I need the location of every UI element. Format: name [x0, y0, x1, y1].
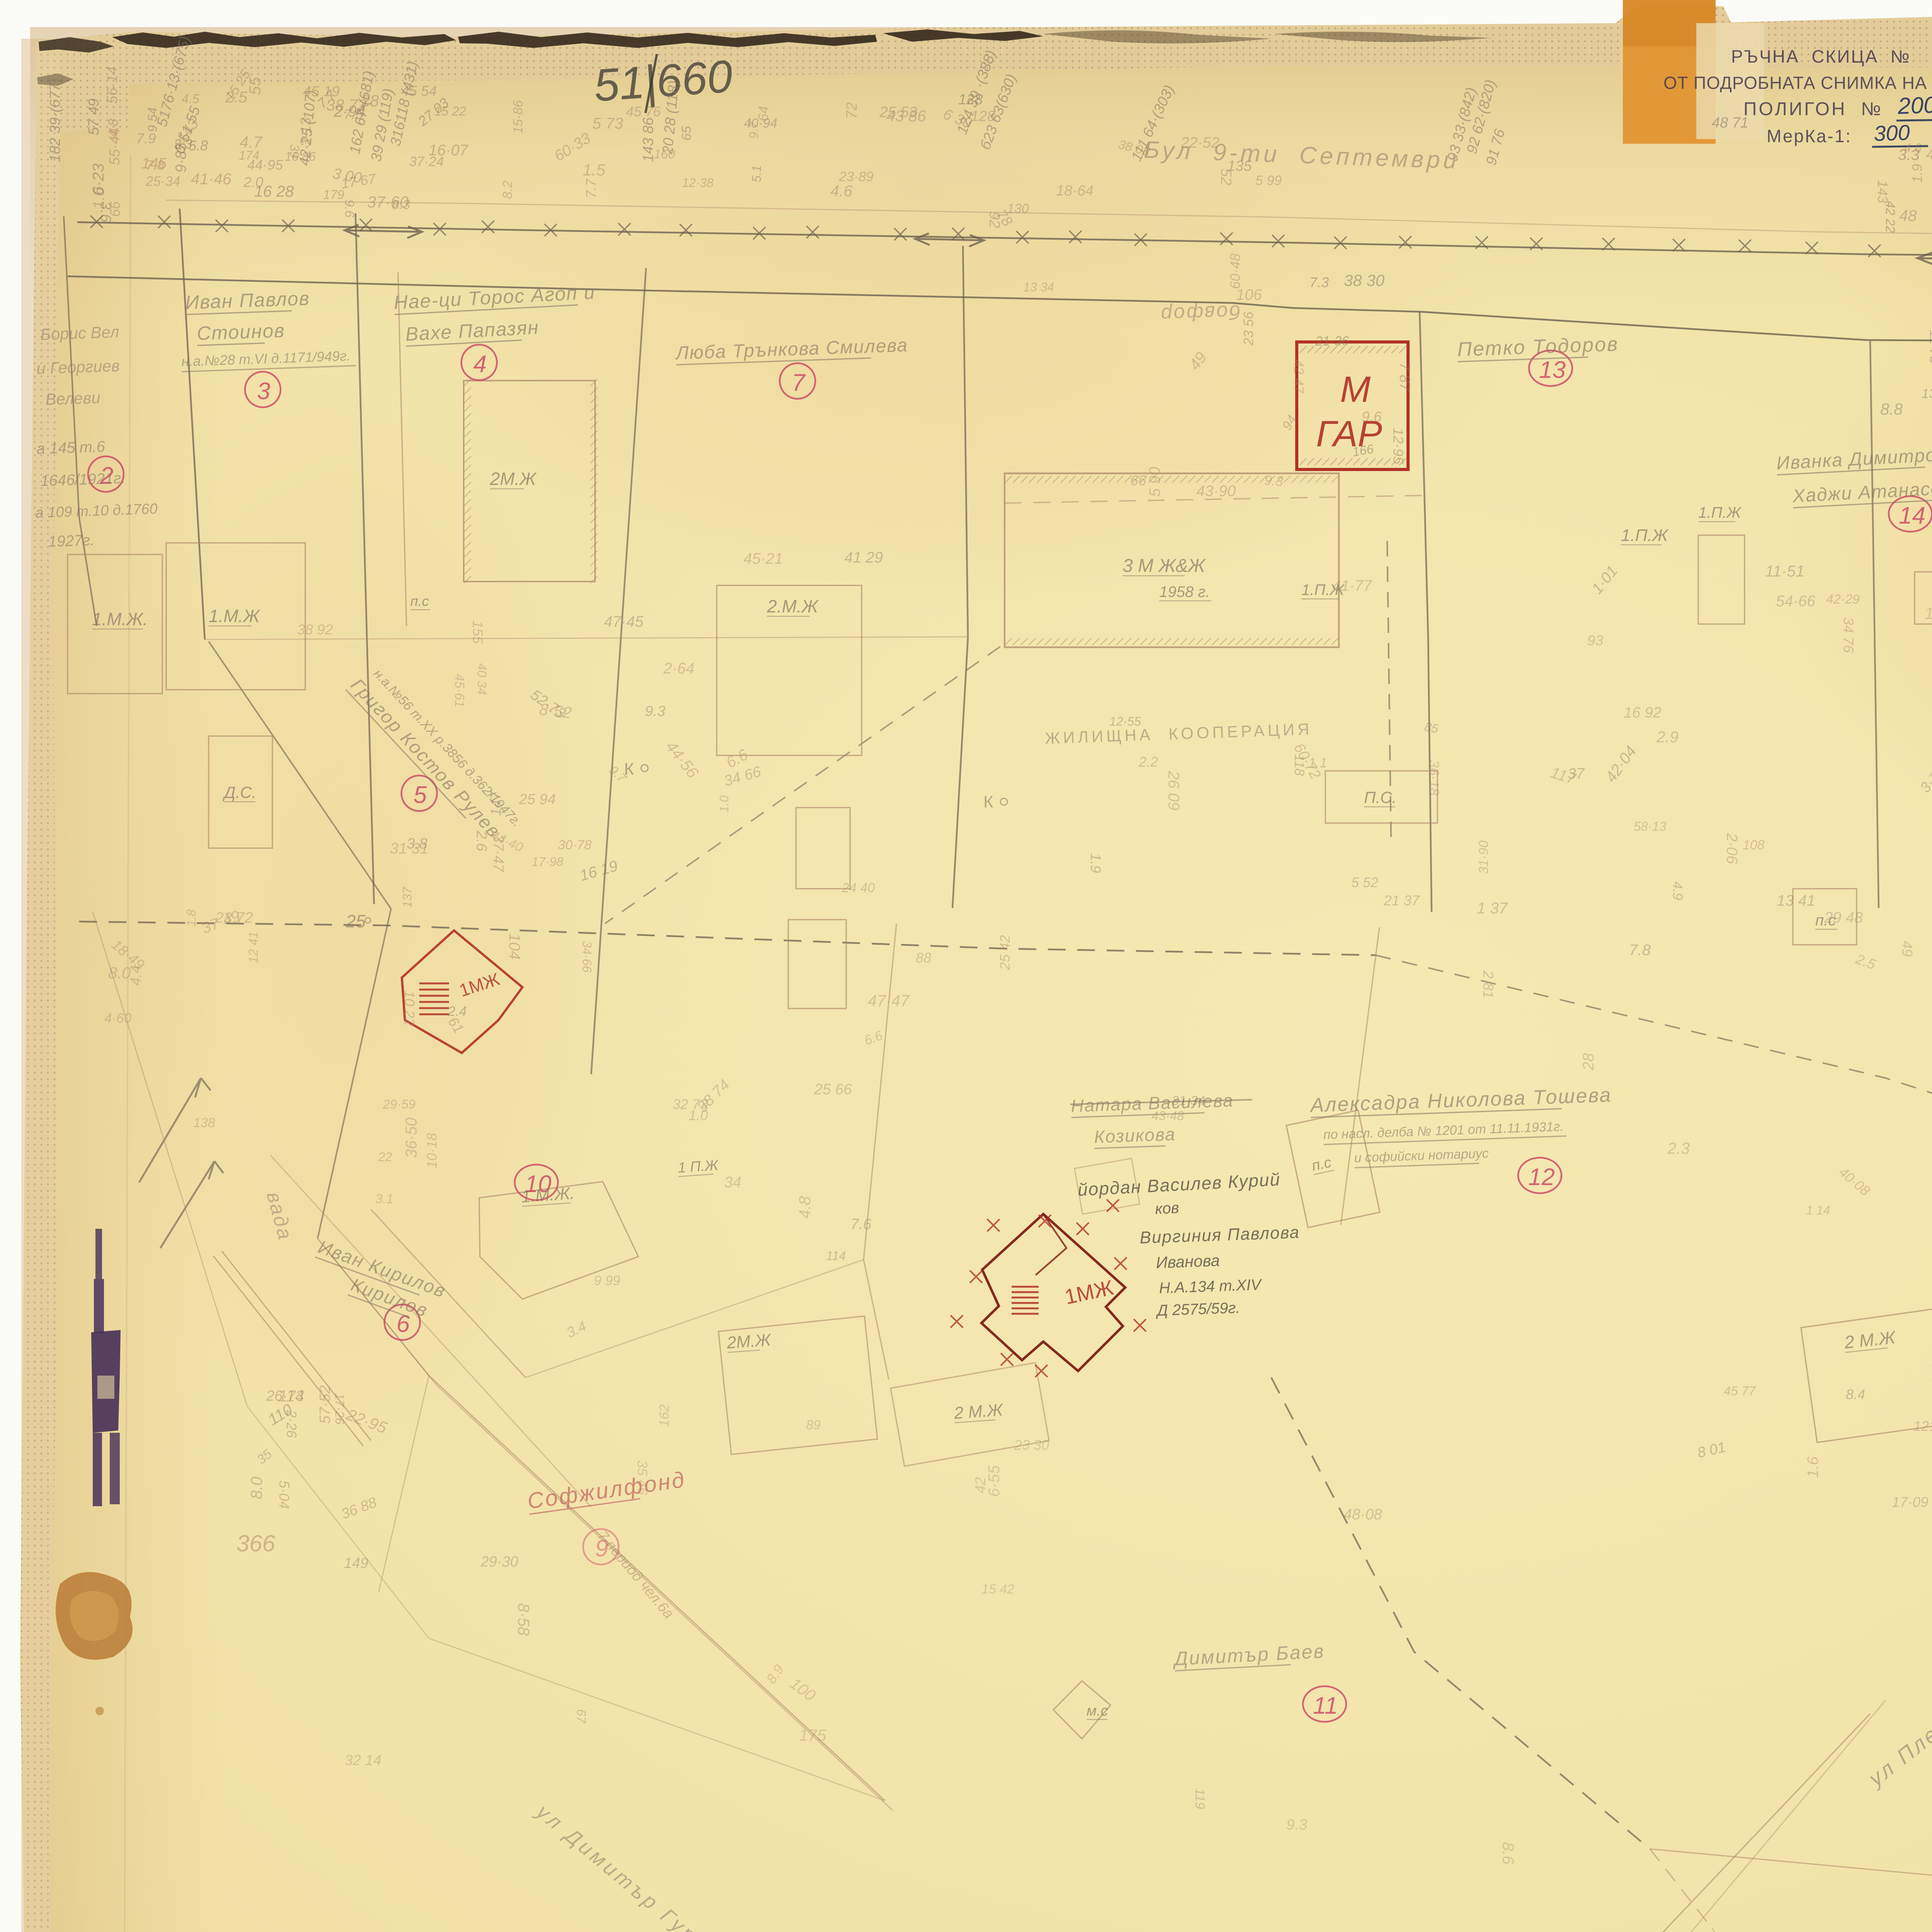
svg-text:23 72: 23 72: [215, 910, 253, 926]
svg-text:1.9: 1.9: [1088, 853, 1104, 873]
svg-text:Козикова: Козикова: [1094, 1124, 1176, 1147]
svg-text:7.8: 7.8: [146, 158, 164, 173]
svg-text:38 92: 38 92: [297, 622, 333, 638]
svg-text:23 56: 23 56: [1241, 311, 1256, 346]
svg-text:4.8: 4.8: [796, 1196, 814, 1219]
svg-text:26 09: 26 09: [1165, 770, 1183, 811]
svg-text:и Георгиев: и Георгиев: [36, 357, 120, 378]
svg-text:1.6: 1.6: [1804, 1456, 1821, 1478]
svg-text:2.0: 2.0: [243, 174, 264, 190]
svg-text:147: 147: [488, 791, 504, 816]
svg-text:58·13: 58·13: [1634, 819, 1667, 833]
svg-text:25 66: 25 66: [814, 1081, 852, 1098]
svg-text:16 92: 16 92: [1624, 704, 1662, 721]
svg-text:13: 13: [1539, 357, 1566, 383]
svg-text:42 47: 42 47: [1291, 359, 1306, 394]
svg-text:99: 99: [107, 201, 123, 216]
svg-text:67: 67: [574, 1709, 588, 1724]
svg-text:32 14: 32 14: [345, 1752, 381, 1769]
svg-text:1 П.Ж: 1 П.Ж: [677, 1157, 719, 1176]
svg-text:88: 88: [916, 950, 931, 966]
svg-text:48 71: 48 71: [1712, 115, 1748, 131]
svg-text:ПОЛИГОН №: ПОЛИГОН №: [1743, 99, 1883, 119]
svg-text:1.2: 1.2: [1925, 604, 1932, 622]
svg-text:51|660: 51|660: [592, 51, 734, 112]
svg-text:9.3: 9.3: [1286, 1816, 1308, 1833]
svg-text:ков: ков: [1155, 1199, 1179, 1218]
svg-text:7 87: 7 87: [1396, 362, 1413, 392]
svg-text:54·66: 54·66: [1776, 593, 1816, 610]
svg-text:1.М.Ж: 1.М.Ж: [209, 606, 260, 626]
svg-text:175: 175: [799, 1726, 827, 1744]
svg-text:15·86: 15·86: [511, 100, 526, 134]
svg-text:57 49: 57 49: [86, 99, 102, 135]
svg-text:15 42: 15 42: [981, 1582, 1014, 1597]
svg-text:1.0: 1.0: [689, 1107, 708, 1123]
svg-text:128: 128: [958, 92, 983, 108]
svg-text:36·50: 36·50: [402, 1117, 420, 1158]
svg-text:41·46: 41·46: [191, 170, 231, 188]
svg-text:9.7: 9.7: [747, 121, 761, 139]
svg-text:м.с: м.с: [1087, 1703, 1108, 1719]
svg-text:31·90: 31·90: [1476, 840, 1491, 874]
svg-text:66: 66: [1130, 473, 1146, 488]
svg-text:5.1: 5.1: [750, 165, 764, 182]
svg-text:4.6: 4.6: [1904, 141, 1922, 155]
svg-text:3: 3: [257, 378, 270, 405]
svg-text:4.6: 4.6: [1926, 146, 1932, 163]
svg-text:10 22: 10 22: [401, 990, 417, 1026]
svg-text:108: 108: [1743, 838, 1765, 852]
svg-text:1927г.: 1927г.: [48, 532, 95, 550]
svg-text:45·61: 45·61: [452, 674, 467, 707]
svg-text:43·90: 43·90: [1196, 483, 1236, 500]
svg-text:7: 7: [792, 369, 806, 396]
svg-text:1 37: 1 37: [1477, 899, 1509, 917]
svg-text:Стоинов: Стоинов: [196, 320, 285, 344]
svg-text:143: 143: [1875, 180, 1891, 203]
svg-text:30·78: 30·78: [558, 838, 592, 852]
svg-text:2.6: 2.6: [473, 830, 490, 852]
svg-text:7.9: 7.9: [136, 131, 156, 146]
svg-text:45·21: 45·21: [743, 550, 783, 567]
svg-text:11: 11: [1313, 1692, 1338, 1719]
svg-text:131: 131: [1922, 386, 1932, 401]
svg-text:1.8: 1.8: [184, 909, 198, 927]
svg-text:8.6: 8.6: [1499, 1842, 1517, 1865]
svg-text:п.с: п.с: [410, 593, 429, 609]
svg-text:366: 366: [236, 1531, 276, 1556]
svg-text:12 41: 12 41: [246, 931, 260, 963]
svg-text:43 86: 43 86: [886, 107, 926, 125]
svg-text:119: 119: [1192, 1788, 1207, 1809]
svg-text:Велеви: Велеви: [45, 388, 101, 408]
svg-text:12·95: 12·95: [1390, 428, 1406, 464]
svg-text:2.9: 2.9: [1656, 728, 1679, 746]
svg-text:40 34: 40 34: [475, 663, 489, 695]
svg-text:7.3: 7.3: [1310, 274, 1329, 290]
svg-text:34 76: 34 76: [1840, 617, 1856, 653]
svg-text:1.М.Ж.: 1.М.Ж.: [92, 609, 148, 629]
svg-text:5: 5: [413, 782, 427, 808]
svg-text:8.2: 8.2: [500, 181, 515, 199]
svg-text:49: 49: [1899, 940, 1915, 957]
svg-text:Борис Вел: Борис Вел: [40, 323, 119, 344]
svg-text:Иван Павлов: Иван Павлов: [185, 287, 310, 313]
svg-text:2.М.Ж: 2.М.Ж: [767, 596, 819, 616]
svg-text:4: 4: [473, 351, 486, 378]
svg-text:12·38: 12·38: [682, 176, 714, 190]
svg-text:48: 48: [1899, 207, 1917, 224]
svg-text:12: 12: [1528, 1164, 1555, 1190]
svg-text:2.2: 2.2: [1138, 754, 1158, 770]
svg-text:6·23: 6·23: [89, 163, 107, 195]
svg-text:104: 104: [506, 933, 524, 959]
svg-text:5 52: 5 52: [1351, 874, 1378, 890]
svg-text:3·13: 3·13: [298, 117, 314, 147]
svg-text:38 30: 38 30: [1344, 271, 1385, 289]
svg-text:36·18: 36·18: [1426, 760, 1442, 796]
svg-text:9.3: 9.3: [645, 703, 665, 719]
svg-text:31·34: 31·34: [1172, 1094, 1205, 1108]
svg-text:14: 14: [1899, 502, 1925, 529]
svg-text:5 90: 5 90: [1146, 467, 1163, 497]
svg-text:МерКа-1:: МерКа-1:: [1767, 126, 1852, 146]
svg-text:155: 155: [470, 621, 486, 644]
svg-text:89: 89: [806, 1418, 821, 1432]
svg-text:23 30: 23 30: [1014, 1437, 1049, 1453]
svg-text:121: 121: [1913, 1418, 1932, 1434]
svg-text:128: 128: [971, 108, 995, 124]
svg-text:8·58: 8·58: [515, 1603, 533, 1636]
svg-text:29·30: 29·30: [480, 1554, 518, 1570]
svg-text:1646/1921г.: 1646/1921г.: [40, 469, 126, 490]
svg-text:57·52: 57·52: [317, 1385, 333, 1424]
svg-text:160: 160: [654, 147, 675, 161]
svg-text:1.0: 1.0: [717, 795, 731, 813]
svg-text:29·59: 29·59: [383, 1097, 415, 1111]
svg-text:45 54: 45 54: [401, 83, 437, 99]
svg-text:бовфор: бовфор: [1159, 301, 1241, 326]
svg-text:47·45: 47·45: [604, 613, 644, 630]
svg-text:7.5: 7.5: [344, 106, 363, 122]
svg-text:13 41: 13 41: [1777, 892, 1815, 909]
svg-text:9.3: 9.3: [1264, 473, 1284, 489]
svg-text:РЪЧНА СКИЦА №: РЪЧНА СКИЦА №: [1731, 46, 1911, 66]
svg-text:34·66: 34·66: [580, 941, 594, 973]
svg-text:4.5: 4.5: [182, 92, 200, 106]
svg-text:7.7: 7.7: [583, 178, 599, 198]
svg-text:4.9: 4.9: [1670, 881, 1685, 900]
svg-text:25·34: 25·34: [145, 174, 180, 189]
svg-text:182 39·(677): 182 39·(677): [47, 78, 63, 162]
svg-text:2 М.Ж: 2 М.Ж: [953, 1400, 1004, 1423]
svg-text:72: 72: [844, 102, 860, 119]
svg-text:Д 2575/59г.: Д 2575/59г.: [1155, 1299, 1240, 1320]
svg-text:1.П.Ж: 1.П.Ж: [1698, 504, 1742, 521]
svg-text:149: 149: [344, 1555, 368, 1571]
svg-text:60·48: 60·48: [1227, 253, 1243, 289]
svg-text:13 34: 13 34: [1023, 280, 1054, 294]
svg-text:135: 135: [1227, 158, 1252, 174]
svg-text:114: 114: [826, 1249, 846, 1263]
svg-text:Н.А.134 т.XIV: Н.А.134 т.XIV: [1159, 1276, 1263, 1297]
svg-text:56·14: 56·14: [104, 66, 121, 104]
svg-text:11·51: 11·51: [1765, 562, 1804, 580]
svg-text:45 77: 45 77: [1724, 1384, 1756, 1398]
svg-text:2·64: 2·64: [663, 660, 694, 677]
svg-text:2М.Ж: 2М.Ж: [726, 1330, 772, 1352]
svg-text:1.П.Ж: 1.П.Ж: [1621, 526, 1669, 545]
svg-text:42 22: 42 22: [1883, 201, 1898, 233]
svg-text:17·98: 17·98: [532, 855, 563, 869]
svg-text:8.8: 8.8: [1880, 400, 1903, 418]
svg-text:25 94: 25 94: [519, 791, 556, 808]
svg-text:4·60: 4·60: [104, 1011, 132, 1026]
svg-text:200: 200: [1897, 92, 1932, 119]
svg-text:1.9: 1.9: [1909, 164, 1925, 183]
svg-text:93: 93: [1587, 633, 1604, 648]
svg-text:25: 25: [345, 911, 366, 931]
svg-text:162: 162: [657, 1405, 672, 1427]
svg-text:5 73: 5 73: [592, 114, 623, 132]
svg-text:7.8: 7.8: [1629, 942, 1651, 959]
svg-text:29 48: 29 48: [1824, 909, 1863, 926]
svg-text:41·77: 41·77: [1332, 577, 1372, 594]
svg-text:1958 г.: 1958 г.: [1159, 583, 1210, 600]
svg-text:21·36: 21·36: [1315, 334, 1349, 349]
svg-text:35 46: 35 46: [634, 1460, 650, 1495]
svg-text:41 29: 41 29: [844, 549, 883, 566]
svg-text:24 40: 24 40: [842, 881, 875, 895]
svg-text:3.3: 3.3: [174, 137, 192, 151]
svg-text:2·26: 2·26: [284, 1410, 299, 1438]
svg-text:6·05: 6·05: [1929, 1354, 1932, 1386]
svg-text:2 81: 2 81: [1480, 970, 1496, 998]
svg-text:28: 28: [1580, 1053, 1597, 1071]
svg-text:4.6: 4.6: [830, 182, 852, 200]
svg-text:15 22: 15 22: [434, 104, 466, 118]
svg-text:а 145 т.6: а 145 т.6: [36, 438, 106, 457]
svg-text:47·47: 47·47: [868, 992, 910, 1010]
svg-text:18·64: 18·64: [1056, 183, 1094, 199]
svg-text:17·09: 17·09: [1892, 1494, 1929, 1510]
svg-text:11 73: 11 73: [1927, 330, 1932, 364]
svg-text:2М.Ж: 2М.Ж: [490, 469, 537, 489]
svg-text:9 99: 9 99: [594, 1273, 620, 1288]
svg-text:55·44: 55·44: [107, 128, 123, 165]
svg-text:25 42: 25 42: [997, 935, 1013, 970]
svg-text:26·73: 26·73: [266, 1388, 304, 1404]
svg-text:16 86: 16 86: [285, 150, 316, 163]
svg-text:5 99: 5 99: [1255, 173, 1282, 188]
svg-text:22: 22: [378, 1150, 392, 1164]
svg-text:Д.С.: Д.С.: [223, 783, 256, 801]
svg-text:М: М: [1340, 369, 1371, 410]
svg-text:16·07: 16·07: [429, 142, 469, 159]
svg-text:179: 179: [323, 187, 344, 202]
svg-text:34: 34: [724, 1174, 742, 1191]
svg-text:48·08: 48·08: [1344, 1506, 1382, 1523]
svg-text:10·18: 10·18: [424, 1133, 440, 1168]
svg-text:45 76: 45 76: [626, 104, 661, 119]
svg-text:1.5: 1.5: [583, 161, 605, 179]
svg-text:3.1: 3.1: [375, 1192, 393, 1206]
svg-text:8.4: 8.4: [1846, 1386, 1865, 1402]
svg-text:85: 85: [1423, 719, 1440, 736]
svg-text:ОТ ПОДРОБНАТА СНИМКА НА: ОТ ПОДРОБНАТА СНИМКА НА: [1663, 73, 1927, 93]
svg-text:1 14: 1 14: [1806, 1203, 1830, 1217]
svg-text:2.3: 2.3: [1667, 1139, 1690, 1157]
svg-text:9.6: 9.6: [342, 199, 357, 218]
svg-text:137: 137: [400, 886, 414, 908]
svg-text:П.С.: П.С.: [1364, 788, 1396, 806]
svg-text:Иванова: Иванова: [1156, 1251, 1220, 1272]
svg-text:8.3: 8.3: [392, 197, 410, 212]
svg-text:65: 65: [679, 126, 694, 141]
svg-text:К: К: [983, 793, 993, 811]
svg-text:3 М Ж&Ж: 3 М Ж&Ж: [1122, 556, 1206, 576]
svg-text:12·55: 12·55: [1109, 714, 1141, 728]
svg-text:42·29: 42·29: [1826, 592, 1860, 607]
svg-text:9.6: 9.6: [1362, 409, 1382, 425]
svg-text:106: 106: [1236, 286, 1262, 303]
svg-text:44·95: 44·95: [247, 157, 283, 173]
svg-text:2·06: 2·06: [1723, 833, 1740, 864]
svg-text:17·26: 17·26: [333, 1393, 347, 1425]
svg-text:23·89: 23·89: [838, 169, 874, 184]
svg-text:6·55: 6·55: [985, 1465, 1003, 1497]
svg-text:22·52: 22·52: [1180, 134, 1219, 151]
svg-text:8.0: 8.0: [247, 1476, 265, 1499]
svg-text:9 54: 9 54: [145, 107, 160, 132]
svg-text:21 37: 21 37: [1383, 893, 1420, 908]
svg-text:7.6: 7.6: [850, 1216, 872, 1233]
svg-text:138: 138: [193, 1116, 215, 1130]
svg-text:3.8: 3.8: [406, 835, 428, 852]
svg-text:43·48: 43·48: [1151, 1109, 1184, 1123]
svg-text:5·04: 5·04: [276, 1480, 292, 1509]
